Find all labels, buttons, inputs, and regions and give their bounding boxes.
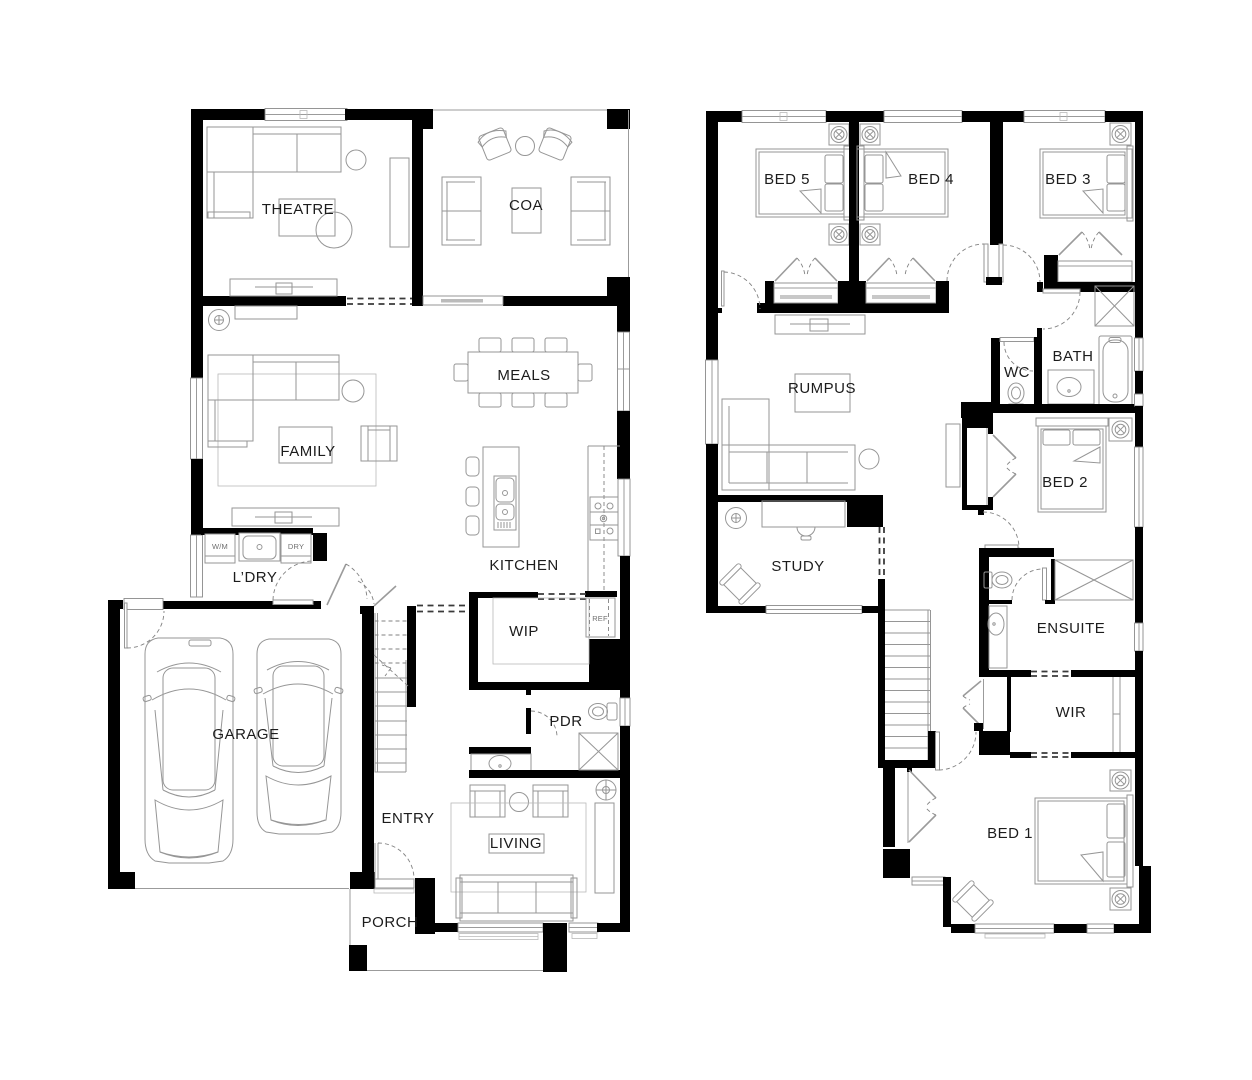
svg-text:BED 1: BED 1	[987, 825, 1033, 842]
svg-text:PDR: PDR	[549, 713, 582, 730]
svg-text:GARAGE: GARAGE	[212, 726, 279, 743]
svg-text:FAMILY: FAMILY	[280, 443, 335, 460]
svg-text:L’DRY: L’DRY	[233, 569, 278, 586]
svg-text:BED 4: BED 4	[908, 171, 954, 188]
svg-text:ENSUITE: ENSUITE	[1037, 620, 1106, 637]
svg-text:BATH: BATH	[1053, 348, 1094, 365]
svg-text:COA: COA	[509, 197, 543, 214]
svg-text:THEATRE: THEATRE	[262, 201, 334, 218]
svg-text:RUMPUS: RUMPUS	[788, 380, 856, 397]
svg-text:BED 2: BED 2	[1042, 474, 1088, 491]
svg-text:WIP: WIP	[509, 623, 539, 640]
svg-text:REF: REF	[592, 614, 608, 623]
svg-text:PORCH: PORCH	[362, 914, 419, 931]
svg-text:WIR: WIR	[1056, 704, 1087, 721]
svg-text:LIVING: LIVING	[490, 835, 542, 852]
svg-text:DRY: DRY	[288, 542, 304, 551]
svg-text:WC: WC	[1004, 364, 1030, 381]
svg-text:MEALS: MEALS	[497, 367, 550, 384]
svg-text:KITCHEN: KITCHEN	[489, 557, 558, 574]
svg-text:BED 5: BED 5	[764, 171, 810, 188]
svg-text:ENTRY: ENTRY	[381, 810, 434, 827]
svg-text:STUDY: STUDY	[771, 558, 824, 575]
svg-text:W/M: W/M	[212, 542, 228, 551]
svg-text:BED 3: BED 3	[1045, 171, 1091, 188]
